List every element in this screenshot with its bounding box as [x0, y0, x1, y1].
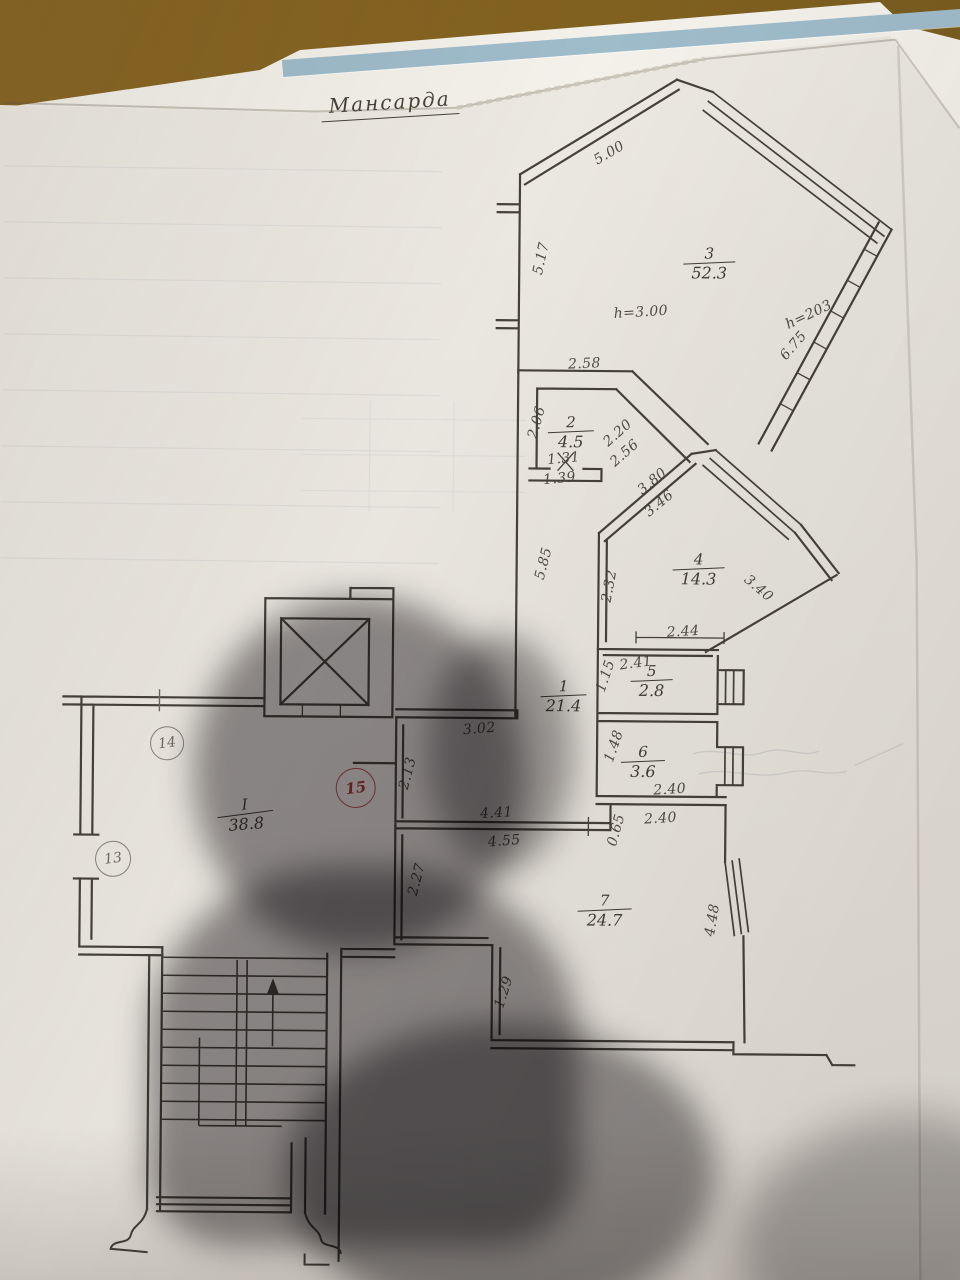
room-label-3: 352.3 — [683, 246, 735, 281]
room-number: 1 — [559, 679, 569, 694]
dimension-label: 2.44 — [666, 623, 700, 641]
room-label-2: 24.5 — [548, 415, 594, 450]
dimension-label: 2.40 — [653, 781, 687, 799]
room-label-1: 121.4 — [540, 679, 586, 714]
dimension-label: 2.40 — [644, 810, 678, 828]
plan-title: Мансарда — [320, 86, 459, 118]
dimension-label: 2.58 — [568, 355, 601, 372]
marker-circle-14: 14 — [148, 724, 186, 762]
room-number: 3 — [705, 246, 715, 261]
room-area: 3.6 — [630, 763, 656, 780]
dimension-label: 4.55 — [487, 832, 521, 851]
marker-circle-15: 15 — [333, 765, 378, 810]
room-area: 4.5 — [558, 433, 584, 450]
dimension-label: 1.15 — [593, 658, 619, 694]
room-number: 6 — [638, 745, 648, 760]
dimension-label: 4.41 — [480, 804, 514, 822]
dimension-label: 2.06 — [525, 405, 549, 441]
room-number: 4 — [694, 552, 704, 567]
dimension-label: 1.39 — [542, 469, 576, 488]
dimension-label: 5.00 — [591, 138, 627, 168]
room-label-4: 414.3 — [672, 552, 724, 587]
dimension-label: 4.48 — [702, 903, 723, 938]
room-area: 2.8 — [639, 682, 665, 699]
dimension-label: 5.17 — [530, 241, 553, 276]
plan-title-text: Мансарда — [320, 86, 460, 122]
dimension-label: 3.40 — [741, 572, 776, 605]
room-area: 24.7 — [587, 911, 623, 928]
room-area: 14.3 — [681, 570, 717, 587]
height-label: h=203 — [783, 297, 835, 333]
room-label-6: 63.6 — [621, 745, 665, 780]
room-area: 21.4 — [546, 697, 582, 714]
room-number: 7 — [600, 894, 610, 909]
photo-of-floor-plan: Мансарда 121.4 24.5 352.3 414.3 52.8 63.… — [0, 0, 960, 1280]
dimension-label: 1.29 — [491, 974, 516, 1010]
room-area: 38.8 — [228, 814, 265, 834]
dimension-label: 1.31 — [547, 449, 581, 468]
room-label-I: I38.8 — [216, 795, 275, 834]
dimension-label: 3.02 — [462, 720, 496, 739]
dimension-label: 2.27 — [405, 862, 429, 898]
height-label: h=3.00 — [613, 303, 668, 322]
dimension-label: 5.85 — [532, 546, 556, 582]
room-area: 52.3 — [691, 264, 727, 281]
dimension-label: 2.32 — [599, 569, 621, 604]
dimension-label: 0.65 — [604, 812, 628, 848]
room-label-7: 724.7 — [577, 893, 631, 928]
room-number: 2 — [566, 415, 576, 430]
marker-circle-13: 13 — [93, 839, 133, 879]
plan-annotations: Мансарда 121.4 24.5 352.3 414.3 52.8 63.… — [0, 0, 960, 1280]
dimension-label: 6.75 — [777, 328, 810, 363]
room-number: I — [241, 797, 248, 812]
dimension-label: 2.13 — [396, 756, 420, 792]
